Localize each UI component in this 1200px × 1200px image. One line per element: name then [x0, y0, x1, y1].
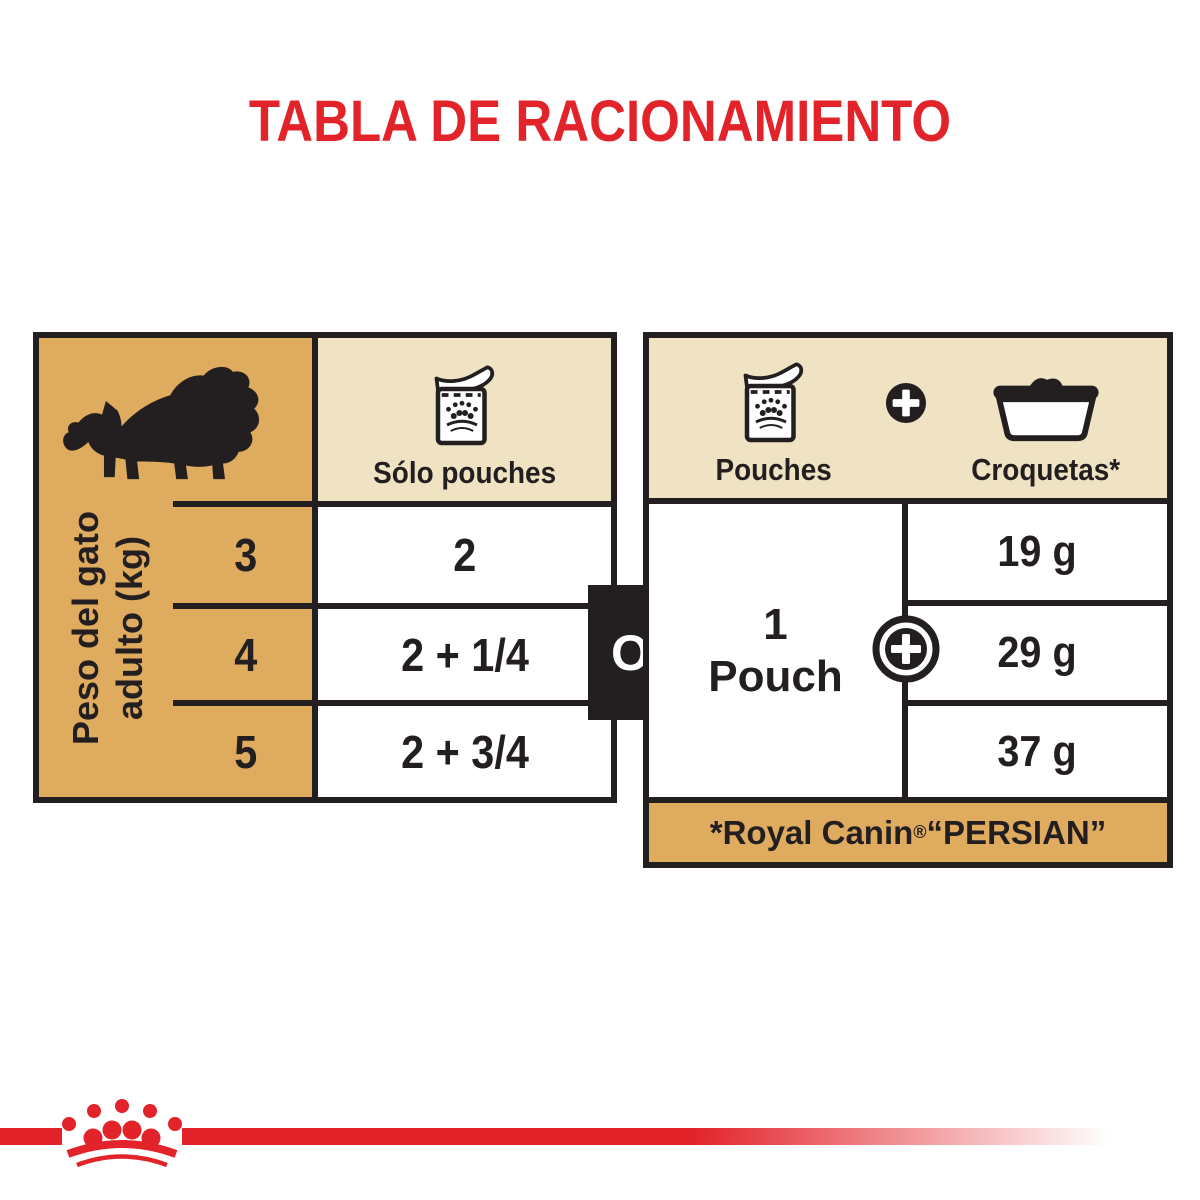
persian-cat-icon [61, 360, 266, 482]
croquetas-header-block: Croquetas* [925, 338, 1167, 498]
pouches-only-label: Sólo pouches [363, 455, 566, 491]
page: TABLA DE RACIONAMIENTO Peso del gato adu… [0, 0, 1200, 1200]
ration-table-pouches-only: Peso del gato adulto (kg) 3 4 5 [33, 332, 617, 803]
pouches-label: Pouches [709, 452, 838, 488]
mixed-body: 1 Pouch 19 g 29 g 37 g [649, 498, 1167, 797]
pouches-value-row: 2 [318, 501, 611, 603]
croquetas-values-column: 19 g 29 g 37 g [908, 504, 1167, 797]
croquetas-value-row: 29 g [908, 600, 1167, 700]
pouch-icon [741, 362, 807, 446]
row-divider [173, 603, 312, 609]
mixed-header: Pouches Croquetas* [649, 338, 1167, 498]
weight-row-3: 3 [179, 507, 312, 603]
brand-divider-line [0, 1128, 62, 1145]
footnote: *Royal Canin® “PERSIAN” [649, 797, 1167, 862]
pouches-only-column: Sólo pouches 2 2 + 1/4 2 + 3/4 [318, 338, 611, 797]
pouches-value-row: 2 + 3/4 [318, 700, 611, 797]
pouch-icon [432, 365, 498, 449]
pouches-value-row: 2 + 1/4 [318, 603, 611, 700]
weight-column: Peso del gato adulto (kg) 3 4 5 [39, 338, 318, 797]
plus-icon [885, 382, 927, 424]
pouches-header-block: Pouches [649, 338, 899, 498]
row-divider [173, 700, 312, 706]
croquetas-label: Croquetas* [963, 452, 1128, 488]
weight-axis-label: Peso del gato adulto (kg) [64, 478, 154, 778]
croquetas-value-row: 19 g [908, 504, 1167, 600]
royal-canin-crown-icon [56, 1096, 188, 1168]
row-divider [173, 501, 312, 507]
bowl-icon [987, 372, 1105, 446]
weight-row-4: 4 [179, 609, 312, 700]
page-title: TABLA DE RACIONAMIENTO [0, 88, 1200, 155]
weight-row-5: 5 [179, 706, 312, 797]
ration-table-mixed: Pouches Croquetas* 1 Pouch [643, 332, 1173, 868]
pouches-only-header: Sólo pouches [318, 338, 611, 501]
plus-circle-icon [869, 612, 943, 686]
croquetas-value-row: 37 g [908, 700, 1167, 797]
brand-divider-line-fade [182, 1128, 1110, 1145]
